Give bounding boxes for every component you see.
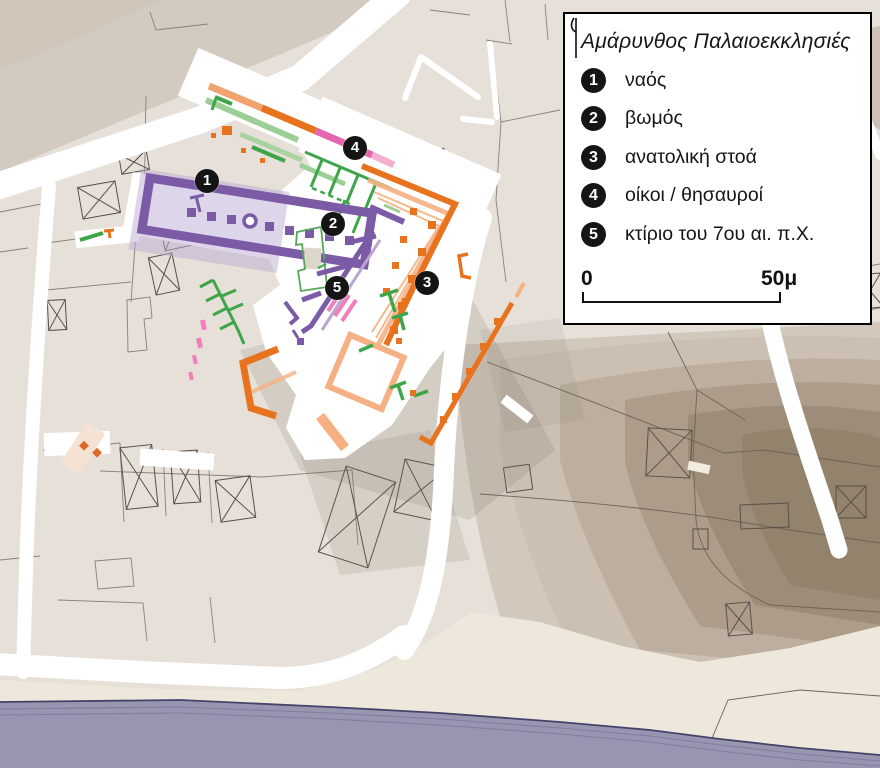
scale-bar: 0 50μ <box>579 267 847 309</box>
legend-item-altar: 2 βωμός <box>581 106 870 131</box>
map-badge-oikoi: 4 <box>343 136 367 160</box>
legend-label-stoa: ανατολική στοά <box>625 146 757 169</box>
map-badge-altar: 2 <box>321 212 345 236</box>
legend-item-temple: 1 ναός <box>581 68 870 93</box>
map-badge-temple: 1 <box>195 169 219 193</box>
site-map: 1 2 3 4 5 Αμάρυνθος Παλαιοεκκλησιές 1 να… <box>0 0 880 768</box>
temple-apse <box>244 215 256 227</box>
legend-badge-3: 3 <box>581 145 606 170</box>
scale-bracket <box>582 292 781 303</box>
legend-label-temple: ναός <box>625 69 666 92</box>
north-arrow-icon <box>565 14 587 60</box>
map-badge-7thc-building: 5 <box>325 276 349 300</box>
legend-label-oikoi: οίκοι / θησαυροί <box>625 184 763 207</box>
legend-label-7thc-building: κτίριο του 7ου αι. π.Χ. <box>625 223 814 246</box>
legend-panel: Αμάρυνθος Παλαιοεκκλησιές 1 ναός 2 βωμός… <box>563 12 872 325</box>
legend-item-7thc-building: 5 κτίριο του 7ου αι. π.Χ. <box>581 222 870 247</box>
legend-label-altar: βωμός <box>625 107 683 130</box>
legend-badge-1: 1 <box>581 68 606 93</box>
legend-item-oikoi: 4 οίκοι / θησαυροί <box>581 183 870 208</box>
legend-title: Αμάρυνθος Παλαιοεκκλησιές <box>581 30 870 54</box>
legend-badge-5: 5 <box>581 222 606 247</box>
legend-badge-4: 4 <box>581 183 606 208</box>
scale-start-label: 0 <box>581 267 593 291</box>
legend-badge-2: 2 <box>581 106 606 131</box>
legend-item-stoa: 3 ανατολική στοά <box>581 145 870 170</box>
scale-end-label: 50μ <box>761 267 797 291</box>
map-badge-stoa: 3 <box>415 271 439 295</box>
